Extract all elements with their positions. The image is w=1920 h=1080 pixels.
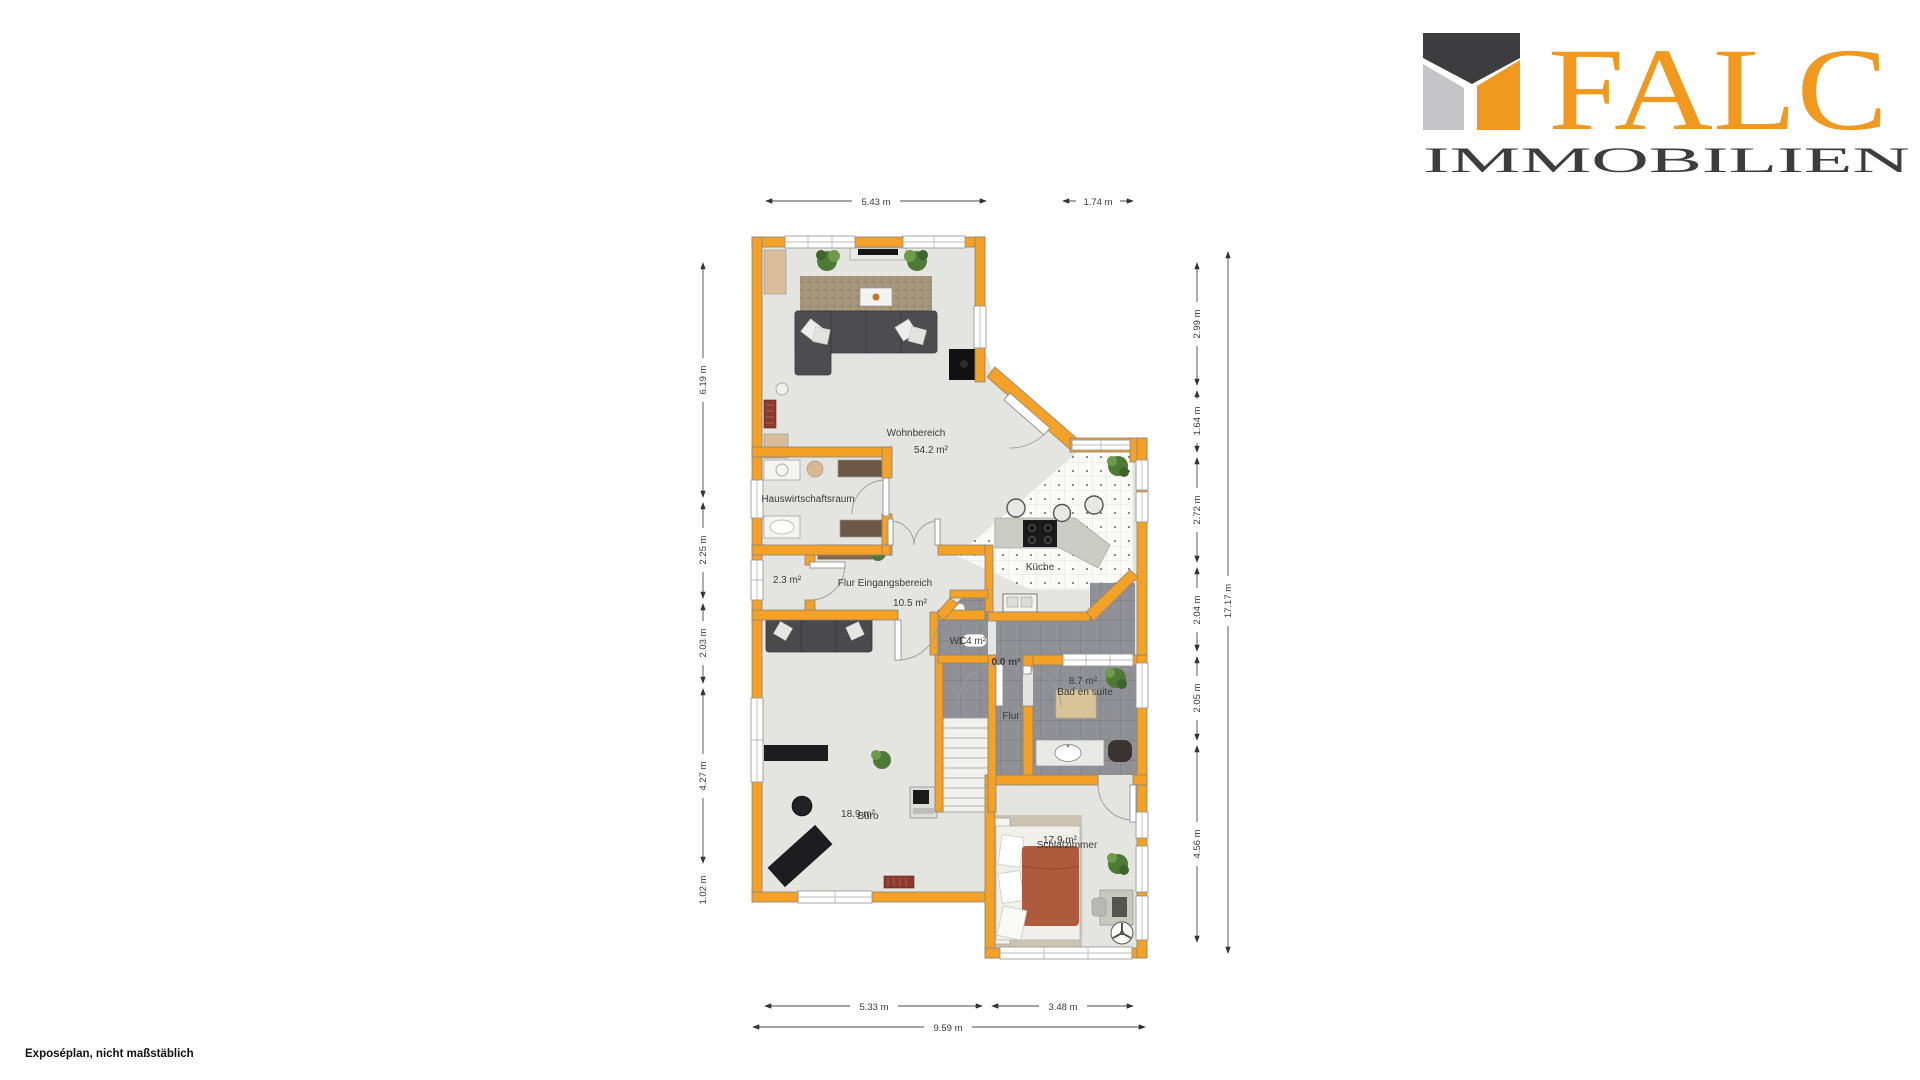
bath-stool <box>1108 740 1132 762</box>
window <box>974 306 986 348</box>
window <box>751 698 763 782</box>
dim-left-5: 1.02 m <box>698 875 709 904</box>
dim-left-1: 6.19 m <box>698 365 709 394</box>
window <box>1136 663 1148 708</box>
window <box>903 236 965 248</box>
room-label-flur: Flur <box>1002 711 1020 722</box>
ceiling-fan-icon <box>1111 922 1133 944</box>
room-area-wohnbereich: 54.2 m² <box>914 445 949 456</box>
dim-left-2: 2.25 m <box>698 535 709 564</box>
room-area-wc: 1.4 m² <box>958 636 987 647</box>
utility-counter <box>840 520 882 537</box>
footer-note: Exposéplan, nicht maßstäblich <box>25 1048 194 1060</box>
room-label-wohnbereich: Wohnbereich <box>887 428 946 439</box>
window <box>751 560 763 600</box>
stool <box>807 461 823 477</box>
stair-landing-floor <box>943 655 988 718</box>
dim-top-1: 5.43 m <box>861 197 890 208</box>
window <box>1136 812 1148 838</box>
bar-stool <box>1054 505 1071 522</box>
room-area-buero: 18.9 m² <box>841 809 876 820</box>
dim-right-6: 4.56 m <box>1192 829 1203 858</box>
window <box>798 891 872 903</box>
dim-right-1: 2.99 m <box>1192 309 1203 338</box>
room-label-hauswirtschaftsraum: Hauswirtschaftsraum <box>761 494 854 505</box>
window <box>1136 896 1148 940</box>
room-area-flur-eingang: 10.5 m² <box>893 598 928 609</box>
utility-counter <box>838 460 882 477</box>
kitchen-sink-unit <box>1003 594 1037 612</box>
dim-right-total: 17.17 m <box>1223 584 1234 618</box>
dim-top-2: 1.74 m <box>1083 197 1112 208</box>
window <box>1136 460 1148 490</box>
sideboard <box>764 250 786 294</box>
window <box>1063 654 1133 666</box>
dim-left-3: 2.03 m <box>698 628 709 657</box>
office-sofa <box>766 617 872 652</box>
bar-stool <box>1007 499 1025 517</box>
desk <box>764 745 828 761</box>
dim-right-5: 2.05 m <box>1192 683 1203 712</box>
radiator <box>764 400 776 428</box>
side-table <box>776 383 788 395</box>
falc-logo-mark-icon <box>1423 33 1520 130</box>
logo-subtitle-text: IMMOBILIEN <box>1423 140 1910 180</box>
staircase <box>943 718 988 812</box>
room-area-niche: 0.0 m² <box>992 657 1022 668</box>
window <box>1136 846 1148 892</box>
room-label-bad: Bad en suite <box>1057 687 1113 698</box>
window <box>1072 440 1130 450</box>
dim-right-2: 1.64 m <box>1192 406 1203 435</box>
room-area-bad: 8.7 m² <box>1069 676 1098 687</box>
floorplan-page: Wohnbereich 54.2 m² Küche Hauswirtschaft… <box>0 0 1920 1080</box>
window <box>785 236 855 248</box>
washer <box>764 460 800 480</box>
falc-logo: FALC IMMOBILIEN <box>1423 24 1910 180</box>
window <box>1000 947 1132 959</box>
dim-left-4: 4.27 m <box>698 761 709 790</box>
room-area-abstellraum: 2.3 m² <box>773 575 802 586</box>
tv <box>858 249 898 255</box>
utility-sink <box>770 520 794 534</box>
dim-right-3: 2.72 m <box>1192 495 1203 524</box>
bowl <box>873 294 880 301</box>
room-area-schlafzimmer: 17.9 m² <box>1043 835 1078 846</box>
radiator <box>884 876 914 888</box>
dim-bottom-total: 9.59 m <box>933 1023 962 1034</box>
room-label-flur-eingang: Flur Eingangsbereich <box>838 578 933 589</box>
desk-chair <box>792 796 812 816</box>
bar-stool <box>1085 496 1103 514</box>
cooktop <box>1023 520 1057 547</box>
printer <box>910 787 937 818</box>
logo-brand-text: FALC <box>1548 24 1888 155</box>
dim-bottom-2: 3.48 m <box>1048 1002 1077 1013</box>
floorplan-svg: Wohnbereich 54.2 m² Küche Hauswirtschaft… <box>0 0 1920 1080</box>
dim-bottom-1: 5.33 m <box>859 1002 888 1013</box>
room-label-kueche: Küche <box>1026 562 1055 573</box>
dim-right-4: 2.04 m <box>1192 595 1203 624</box>
window <box>1136 492 1148 522</box>
